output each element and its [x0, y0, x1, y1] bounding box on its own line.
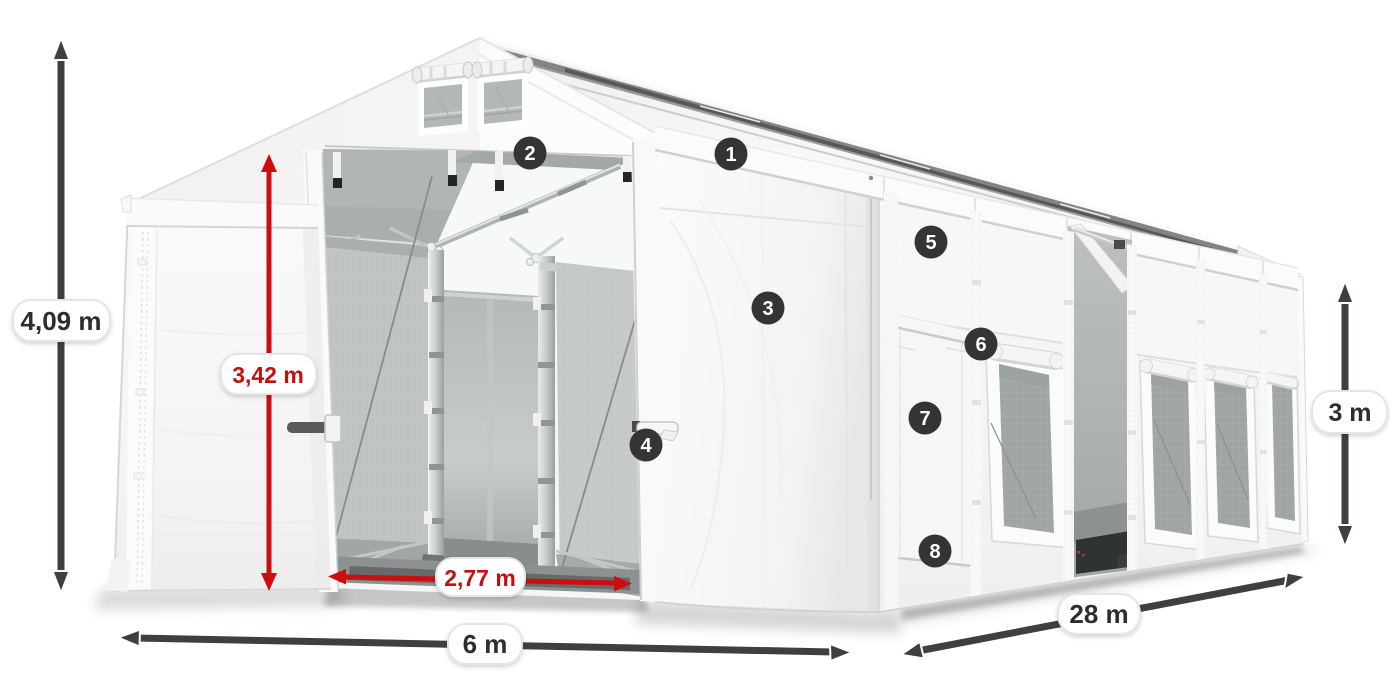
svg-text:3 m: 3 m [1328, 399, 1371, 427]
svg-text:4: 4 [640, 435, 652, 457]
svg-text:7: 7 [919, 408, 930, 430]
svg-text:5: 5 [925, 232, 936, 254]
svg-text:2: 2 [524, 143, 535, 165]
svg-text:3,42 m: 3,42 m [232, 362, 304, 388]
svg-text:4,09 m: 4,09 m [21, 306, 102, 336]
svg-text:3: 3 [762, 298, 773, 320]
svg-text:8: 8 [929, 541, 940, 563]
svg-text:6: 6 [975, 334, 986, 356]
svg-text:2,77 m: 2,77 m [444, 565, 516, 591]
svg-text:6 m: 6 m [463, 629, 508, 659]
svg-text:1: 1 [725, 144, 736, 166]
svg-text:28 m: 28 m [1069, 599, 1128, 629]
